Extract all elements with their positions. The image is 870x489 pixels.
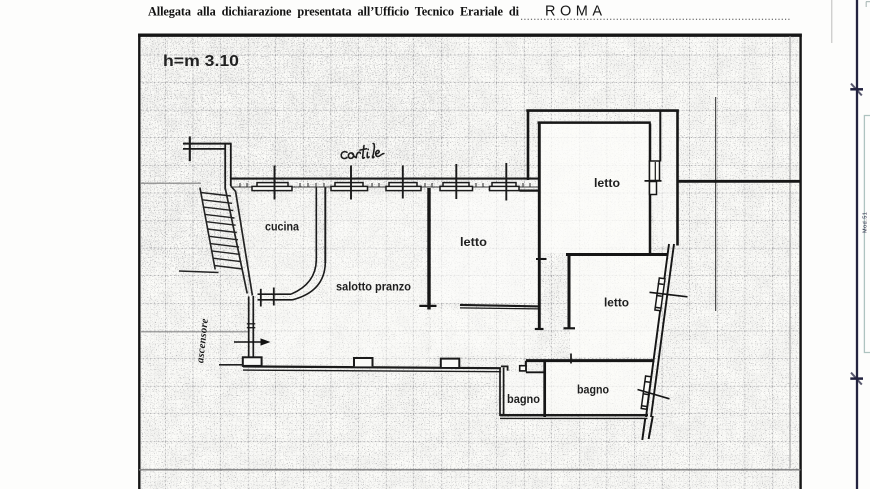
svg-text:letto: letto [594,176,620,190]
svg-text:cucina: cucina [265,220,299,234]
svg-text:bagno: bagno [577,383,609,397]
svg-text:Mod.51: Mod.51 [863,212,869,233]
svg-text:salotto pranzo: salotto pranzo [336,280,411,294]
svg-text:Allegata alla dichiarazione pr: Allegata alla dichiarazione presentata a… [148,5,520,19]
svg-text:ROMA: ROMA [545,4,607,20]
svg-text:h=m 3.10: h=m 3.10 [163,53,239,70]
svg-text:bagno: bagno [507,392,540,406]
svg-text:letto: letto [604,296,629,310]
svg-text:letto: letto [460,235,487,249]
